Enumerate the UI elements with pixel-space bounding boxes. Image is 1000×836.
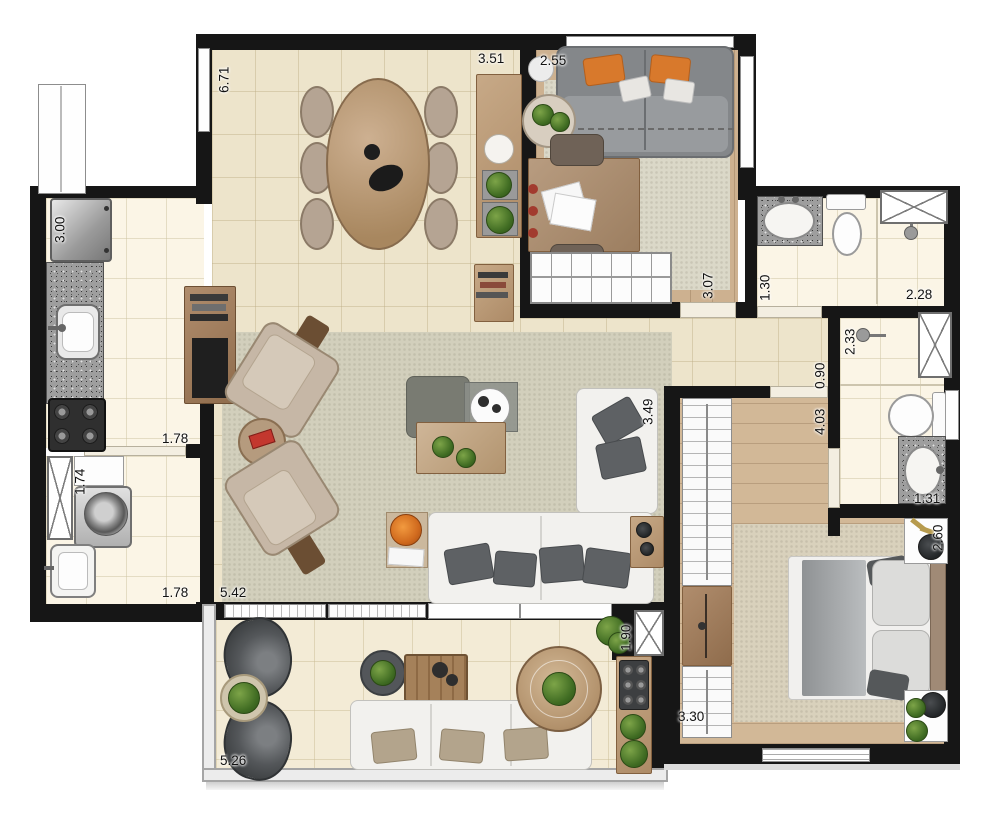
papers	[387, 547, 424, 567]
window	[740, 56, 754, 168]
wall	[30, 604, 212, 622]
plant	[620, 740, 648, 768]
plant	[620, 714, 646, 740]
dining-chair	[300, 198, 334, 250]
dining-chair	[424, 198, 458, 250]
dresser-knob	[698, 622, 706, 630]
bed-pillow	[872, 560, 930, 626]
dim-label-bath2-depth: 2.33	[842, 318, 858, 366]
red-plant	[528, 206, 538, 216]
candle	[446, 674, 458, 686]
dim-label-bath1-width: 2.28	[906, 288, 932, 302]
dim-label-laundry-depth: 1.74	[72, 458, 88, 506]
tan-pillow	[439, 728, 486, 764]
dim-label-bedroom-depth: 4.03	[812, 398, 828, 446]
books	[480, 282, 506, 288]
orange-flowers	[390, 514, 422, 546]
wall	[664, 386, 680, 764]
shower-screen	[876, 198, 878, 304]
shower-screen	[840, 384, 944, 386]
dim-label-bedroom-width: 3.30	[678, 710, 704, 724]
shower-head	[904, 226, 918, 240]
door-threshold-bath2	[828, 448, 840, 508]
plant	[486, 206, 514, 234]
exterior-ledge	[38, 84, 86, 194]
lamp	[640, 542, 654, 556]
dresser	[682, 586, 732, 666]
wardrobe-rail	[706, 670, 708, 734]
dining-table	[326, 78, 430, 250]
tv-panel	[192, 338, 228, 398]
wall	[664, 386, 770, 398]
dim-label-kitchen-depth: 3.00	[52, 206, 68, 254]
table-bowl	[364, 144, 380, 160]
books	[476, 292, 508, 298]
dim-label-living-depth: 3.49	[640, 388, 656, 436]
sofa-seam	[644, 50, 646, 150]
bed-blanket	[802, 560, 866, 696]
wall	[520, 302, 680, 318]
dim-label-dining-width: 3.51	[478, 52, 504, 66]
shower-head	[856, 328, 870, 342]
books	[478, 272, 508, 278]
books	[190, 294, 228, 301]
window	[198, 48, 210, 132]
floor-plan: 6.71 3.51 2.55 3.07 3.00 1.78 1.74 1.78 …	[0, 0, 1000, 836]
shaft-x-box	[918, 312, 952, 378]
wall	[836, 504, 944, 518]
desk-chair	[550, 134, 604, 166]
dim-label-hall-width: 0.90	[812, 352, 828, 400]
sliding-door-panel	[428, 603, 520, 619]
white-pillow	[663, 78, 696, 104]
faucet	[44, 566, 54, 570]
plant	[486, 172, 512, 198]
decor-bowl	[484, 134, 514, 164]
dim-label-dining-depth: 6.71	[216, 56, 232, 104]
dim-label-bath1-depth: 1.30	[757, 264, 773, 312]
balcony-railing	[202, 604, 216, 782]
toilet-bowl	[888, 394, 934, 438]
plant	[456, 448, 476, 468]
toilet-bowl	[832, 212, 862, 256]
bedroom-window	[762, 748, 870, 762]
burner	[82, 428, 98, 444]
sofa-pillow	[582, 547, 633, 589]
wall	[745, 186, 757, 318]
balcony-window	[328, 604, 426, 618]
books	[192, 304, 226, 311]
plant	[906, 698, 926, 718]
dim-label-office-depth: 3.07	[700, 262, 716, 310]
bath-sink	[763, 202, 815, 240]
wardrobe-rail	[706, 404, 708, 580]
cup	[492, 404, 501, 413]
office-rack	[530, 252, 672, 304]
dim-label-balcony-width: 5.26	[220, 754, 246, 768]
red-plant	[528, 228, 538, 238]
shaft-x-box	[880, 190, 948, 224]
dim-label-office-width: 2.55	[540, 54, 566, 68]
tan-pillow	[370, 728, 417, 764]
projection-line	[548, 128, 734, 130]
burner	[54, 404, 70, 420]
balcony-window	[224, 604, 326, 618]
sink-basin	[62, 312, 94, 352]
laundry-basin	[58, 552, 88, 590]
railing-shadow	[206, 782, 664, 790]
faucet-knob	[778, 196, 785, 203]
candle	[432, 662, 448, 678]
toilet-tank	[826, 194, 866, 210]
sofa-seam	[430, 704, 432, 766]
fridge-handle	[104, 248, 109, 253]
wall	[944, 186, 960, 768]
dining-chair	[300, 86, 334, 138]
books	[190, 314, 228, 321]
plant	[228, 682, 260, 714]
faucet-knob	[936, 466, 944, 474]
sofa-pillow	[493, 550, 538, 588]
toilet-tank	[932, 392, 946, 440]
faucet-knob	[792, 196, 799, 203]
plant	[432, 436, 454, 458]
tan-pillow	[503, 727, 549, 762]
washer-door	[84, 492, 128, 536]
lamp	[636, 522, 652, 538]
dim-label-balcony-depth: 1.90	[618, 614, 634, 662]
faucet-knob	[58, 324, 66, 332]
dining-chair	[424, 86, 458, 138]
grill-burner	[623, 695, 633, 705]
shaft-x-box	[634, 610, 664, 656]
burner	[82, 404, 98, 420]
plant	[906, 720, 928, 742]
fridge-handle	[104, 206, 109, 211]
headboard	[930, 552, 946, 702]
red-plant	[528, 184, 538, 194]
door-leaf-laundry	[186, 444, 200, 458]
wall	[200, 396, 214, 606]
grill-burner	[636, 665, 646, 675]
exterior-ledge-divider	[60, 86, 62, 192]
plant	[550, 112, 570, 132]
rustic-table	[404, 654, 468, 702]
wall	[828, 318, 840, 448]
grill-burner	[623, 680, 633, 690]
grill-burner	[623, 665, 633, 675]
dim-label-living-width: 5.42	[220, 586, 246, 600]
rack-shelf-line	[532, 276, 670, 278]
dim-label-bedroom-side-depth: 2.60	[930, 514, 946, 562]
wall	[30, 186, 46, 622]
grill-burner	[636, 695, 646, 705]
shower-arm	[868, 334, 886, 337]
sofa-pillow	[539, 544, 586, 584]
window	[945, 390, 959, 440]
louver-door	[47, 456, 73, 540]
burner	[54, 428, 70, 444]
dim-label-bath2-width: 1.31	[914, 492, 940, 506]
dim-label-laundry-width: 1.78	[162, 586, 188, 600]
plant	[542, 672, 576, 706]
cup	[478, 396, 489, 407]
sliding-door-panel	[520, 603, 612, 619]
wall-shadow	[664, 764, 960, 770]
grill-burner	[636, 680, 646, 690]
dim-label-kitchen-width: 1.78	[162, 432, 188, 446]
plant	[370, 660, 396, 686]
